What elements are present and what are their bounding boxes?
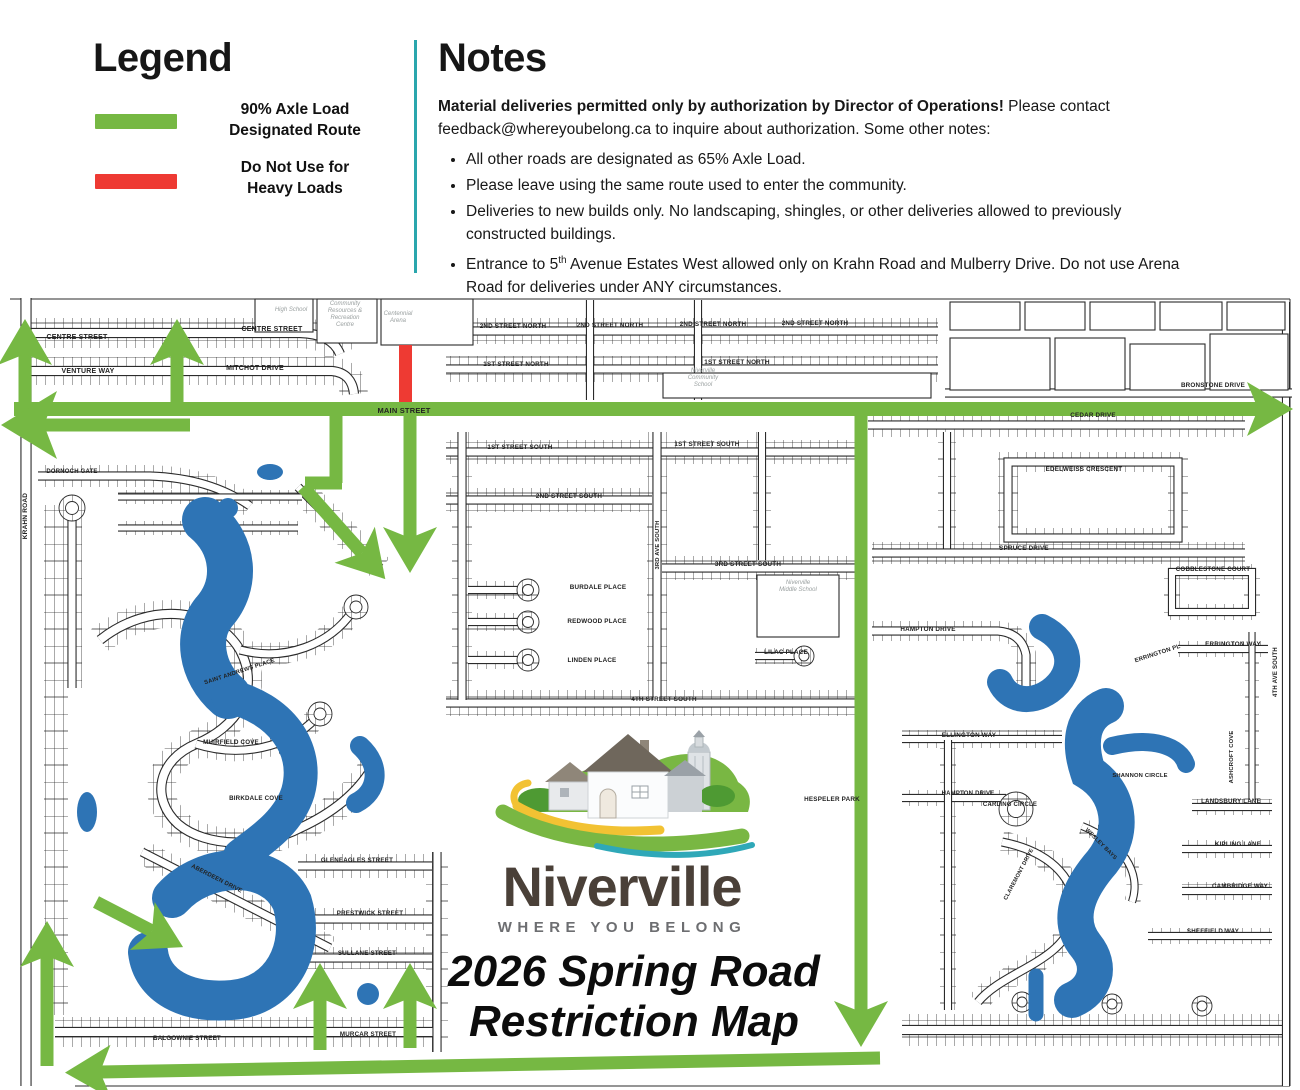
street-label: DORNOCH GATE [46,469,97,475]
map-title-line1: 2026 Spring Road [447,947,821,996]
notes-intro-text: Please contact [1004,98,1110,115]
barn [668,776,702,812]
notes-list: All other roads are designated as 65% Ax… [438,148,1186,299]
note-4-post: Avenue Estates West allowed only on Krah… [466,256,1179,296]
legend-green-swatch [95,114,177,129]
notes-title: Notes [438,36,547,81]
poi-label: High School [275,307,308,313]
street-label: MUIRFIELD COVE [203,739,259,746]
street-label: VENTURE WAY [62,368,115,375]
street-label: ASHCROFT COVE [1229,731,1235,784]
note-item: Please leave using the same route used t… [466,174,1186,197]
logo-wordmark: Niverville [502,855,741,918]
street-label: CEDAR DRIVE [1070,412,1116,419]
street-label: 2ND STREET NORTH [480,323,547,330]
street-label: 1ST STREET SOUTH [674,441,739,448]
note-4-pre: Entrance to 5 [466,256,558,273]
street-label: BURDALE PLACE [570,584,626,591]
street-label: LINDEN PLACE [568,657,617,664]
street-label: KRAHN ROAD [22,493,29,540]
contact-email: feedback@whereyoubelong.ca [438,121,651,138]
street-label: 3RD AVE SOUTH [655,521,661,570]
street-label: 1ST STREET SOUTH [487,444,552,451]
section-divider [414,40,417,273]
legend-line: 90% Axle Load [198,99,392,120]
street-label: MAIN STREET [377,406,430,415]
note-item: All other roads are designated as 65% Ax… [466,148,1186,171]
notes-intro-text2: to inquire about authorization. Some oth… [651,121,991,138]
street-label: SPRUCE DRIVE [999,545,1049,552]
legend-line: Do Not Use for [198,157,392,178]
street-label: 2ND STREET NORTH [680,321,747,328]
street-label: 2ND STREET SOUTH [536,493,602,500]
small-house [549,782,591,810]
note-4-sup: th [558,255,566,266]
legend-item-no-heavy: Do Not Use for Heavy Loads [198,157,392,199]
street-label: BIRKDALE COVE [229,795,283,802]
note-item: Entrance to 5th Avenue Estates West allo… [466,249,1186,299]
logo-tagline: WHERE YOU BELONG [498,919,747,936]
legend-item-90-axle: 90% Axle Load Designated Route [198,99,392,141]
street-label: ERRINGTON PL [1134,644,1181,664]
flyer-page: Legend 90% Axle Load Designated Route Do… [0,0,1300,1090]
street-label: GLENEAGLES STREET [321,857,393,864]
street-label: CAMBRIDGE WAY [1212,883,1269,890]
street-label: BRONSTONE DRIVE [1181,382,1245,389]
map-title: 2026 Spring Road Restriction Map [447,947,821,1046]
notes-body: Material deliveries permitted only by au… [438,95,1186,302]
legend-line: Heavy Loads [198,178,392,199]
route-diagonal-entrance [303,487,362,553]
street-label: LILAC PLACE [764,649,808,656]
street-label: CARLING CIRCLE [983,802,1037,808]
street-label: 2ND STREET NORTH [782,320,849,327]
street-label: BALGOWNIE STREET [153,1035,221,1042]
street-label: HESPELER PARK [804,796,860,803]
map-title-line2: Restriction Map [469,997,799,1046]
street-label: CENTRE STREET [242,326,303,333]
street-label: LANDSBURY LANE [1201,798,1261,805]
legend-title: Legend [93,36,232,81]
street-label: HAMPTON DRIVE [900,626,955,633]
notes-intro-bold: Material deliveries permitted only by au… [438,98,1004,115]
bush-right [699,785,735,807]
restricted-segment-arena-road [399,345,412,402]
street-label: 3RD STREET SOUTH [715,561,781,568]
street-label: 2ND STREET NORTH [577,322,644,329]
street-label: REDWOOD PLACE [567,618,626,625]
street-label: ELLINGTON WAY [942,732,997,739]
route-krahn-diagonal [96,902,152,931]
street-label: CENTRE STREET [47,334,108,341]
street-label: 1ST STREET NORTH [704,359,770,366]
street-label: SHANNON CIRCLE [1112,773,1167,779]
street-label: EDELWEISS CRESCENT [1046,466,1123,473]
street-label: 1ST STREET NORTH [483,361,549,368]
street-label: COBBLESTONE COURT [1176,566,1250,573]
main-house-door [600,789,616,818]
street-label: MURCAR STREET [340,1031,396,1038]
street-label: SULLANE STREET [338,950,396,957]
route-south-band [100,1058,880,1072]
legend-line: Designated Route [198,120,392,141]
street-label: ERRINGTON WAY [1205,641,1261,648]
silo-cupola [695,737,703,747]
legend-red-swatch [95,174,177,189]
street-label: 4TH STREET SOUTH [631,696,697,703]
small-house-window [560,788,569,797]
note-item: Deliveries to new builds only. No landsc… [466,200,1186,246]
notes-intro: Material deliveries permitted only by au… [438,95,1186,141]
street-label: SHEFFIELD WAY [1187,928,1240,935]
map-canvas: CENTRE STREETVENTURE WAYCENTRE STREETMIT… [0,295,1300,1090]
street-label: KIPLING LANE [1215,841,1261,848]
street-label: 4TH AVE SOUTH [1273,647,1279,697]
road-restriction-map: CENTRE STREETVENTURE WAYCENTRE STREETMIT… [0,295,1300,1090]
street-label: HAMPTON DRIVE [942,791,995,797]
street-label: PRESTWICK STREET [337,910,403,917]
street-label: MITCHOT DRIVE [226,365,284,372]
